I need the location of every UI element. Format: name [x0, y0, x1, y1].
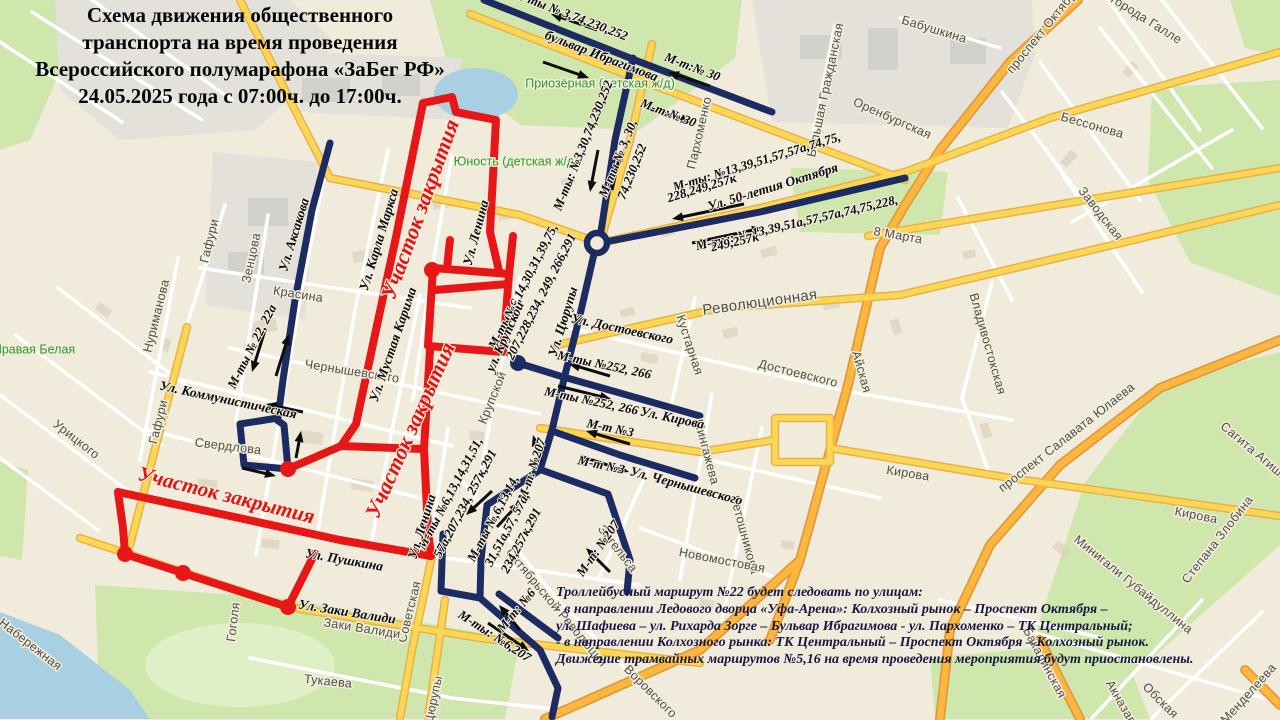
closed-stop-dot [280, 461, 296, 477]
note-line: Троллейбусный маршрут №22 будет следоват… [556, 585, 1236, 602]
landmark-label: Правая Белая [0, 342, 75, 356]
closed-route-line [447, 240, 450, 268]
map-title: Схема движения общественного транспорта … [0, 2, 480, 110]
title-line: Всероссийского полумарафона «ЗаБег РФ» [0, 56, 480, 83]
building [868, 28, 898, 70]
title-line: транспорта на время проведения [0, 29, 480, 56]
park-lawn [145, 623, 335, 707]
landmark-label: Юность (детская ж/д) [454, 154, 579, 168]
roundabout [587, 233, 607, 253]
note-line: - в направлении Ледового дворца «Уфа-Аре… [556, 602, 1236, 619]
closed-stop-dot [424, 262, 440, 278]
closed-route-line [509, 236, 513, 274]
note-line: Движение трамвайных маршрутов №5,16 на в… [556, 652, 1236, 669]
closed-stop-dot [175, 565, 191, 581]
note-line: ул. Шафиева – ул. Рихарда Зорге – Бульва… [556, 619, 1236, 636]
route-22-note: Троллейбусный маршрут №22 будет следоват… [556, 585, 1236, 669]
transit-map-screenshot: КрасинаЧернышевскогоСвердловаГоголяСовет… [0, 0, 1280, 720]
title-line: 24.05.2025 года с 07:00ч. до 17:00ч. [0, 83, 480, 110]
closed-stop-dot [117, 546, 133, 562]
closed-stop-dot [280, 599, 296, 615]
note-line: - в направлении Колхозного рынка: ТК Цен… [556, 635, 1236, 652]
title-line: Схема движения общественного [0, 2, 480, 29]
